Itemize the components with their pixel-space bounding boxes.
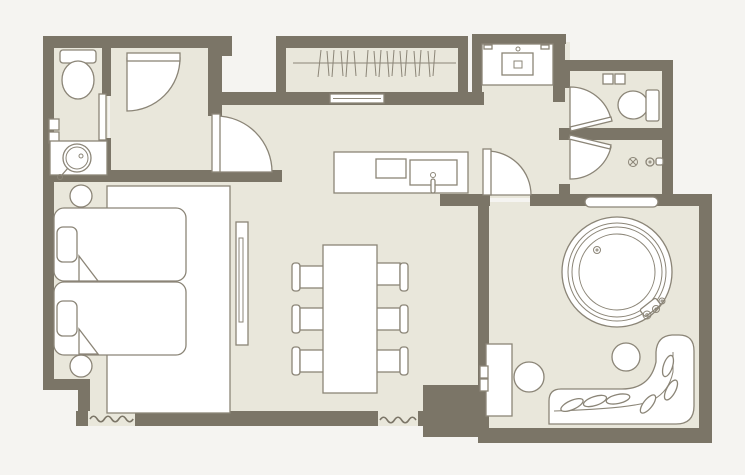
wall-vanity-left — [472, 34, 482, 105]
wc2-niche-square-2 — [615, 74, 625, 84]
wc1-sliding-door — [99, 94, 106, 140]
tv-board — [236, 222, 248, 345]
dining-set — [292, 245, 408, 393]
dining-table — [323, 245, 377, 393]
floor-plan-canvas — [0, 0, 745, 475]
dining-chair — [292, 263, 324, 291]
nightstand-bottom — [70, 355, 92, 377]
toilet-bowl — [62, 61, 94, 99]
wc1-shelf-square-1 — [49, 119, 59, 130]
dining-chair — [292, 305, 324, 333]
wall-bath-left-a — [559, 68, 570, 88]
floor-plan-svg — [0, 0, 745, 475]
wall-break-gap-2 — [378, 411, 418, 426]
dining-chair — [292, 347, 324, 375]
window-shelf — [585, 197, 658, 207]
vanity-sink — [502, 53, 533, 75]
wall-wardrobe-top — [276, 36, 468, 48]
kitchen-island — [334, 152, 468, 193]
wall-left — [43, 36, 54, 390]
cooktop — [376, 159, 406, 178]
nightstand-top — [70, 185, 92, 207]
console-handle-2 — [480, 379, 488, 391]
dining-chair — [376, 305, 408, 333]
round-stool-2 — [612, 343, 640, 371]
wall-jacuzzi-room-right — [699, 194, 712, 443]
basin-counter — [50, 141, 107, 175]
console-cabinet — [486, 344, 512, 416]
wall-bottom-right — [478, 428, 712, 443]
wall-vanity-top — [472, 34, 566, 44]
wall-wardrobe-left — [276, 36, 286, 96]
vanity — [482, 44, 553, 85]
dining-chair — [376, 347, 408, 375]
console-handle-1 — [480, 366, 488, 378]
vanity-bracket-left — [484, 45, 492, 49]
toilet2-tank — [646, 90, 659, 121]
island-faucet-stem — [431, 179, 435, 193]
wall-bath-top — [559, 60, 673, 71]
pillow-1 — [57, 227, 77, 262]
round-stool-1 — [514, 362, 544, 392]
vanity-bracket-right — [541, 45, 549, 49]
toilet2-bowl — [618, 91, 648, 119]
wall-bath-right — [662, 60, 673, 198]
wc2-niche-square-1 — [603, 74, 613, 84]
wall-wc1-divider-upper — [102, 46, 111, 96]
wall-wardrobe-right — [458, 36, 468, 96]
wall-bottom-left-a — [76, 411, 90, 426]
pillow-2 — [57, 301, 77, 336]
wall-top-left — [43, 36, 220, 48]
